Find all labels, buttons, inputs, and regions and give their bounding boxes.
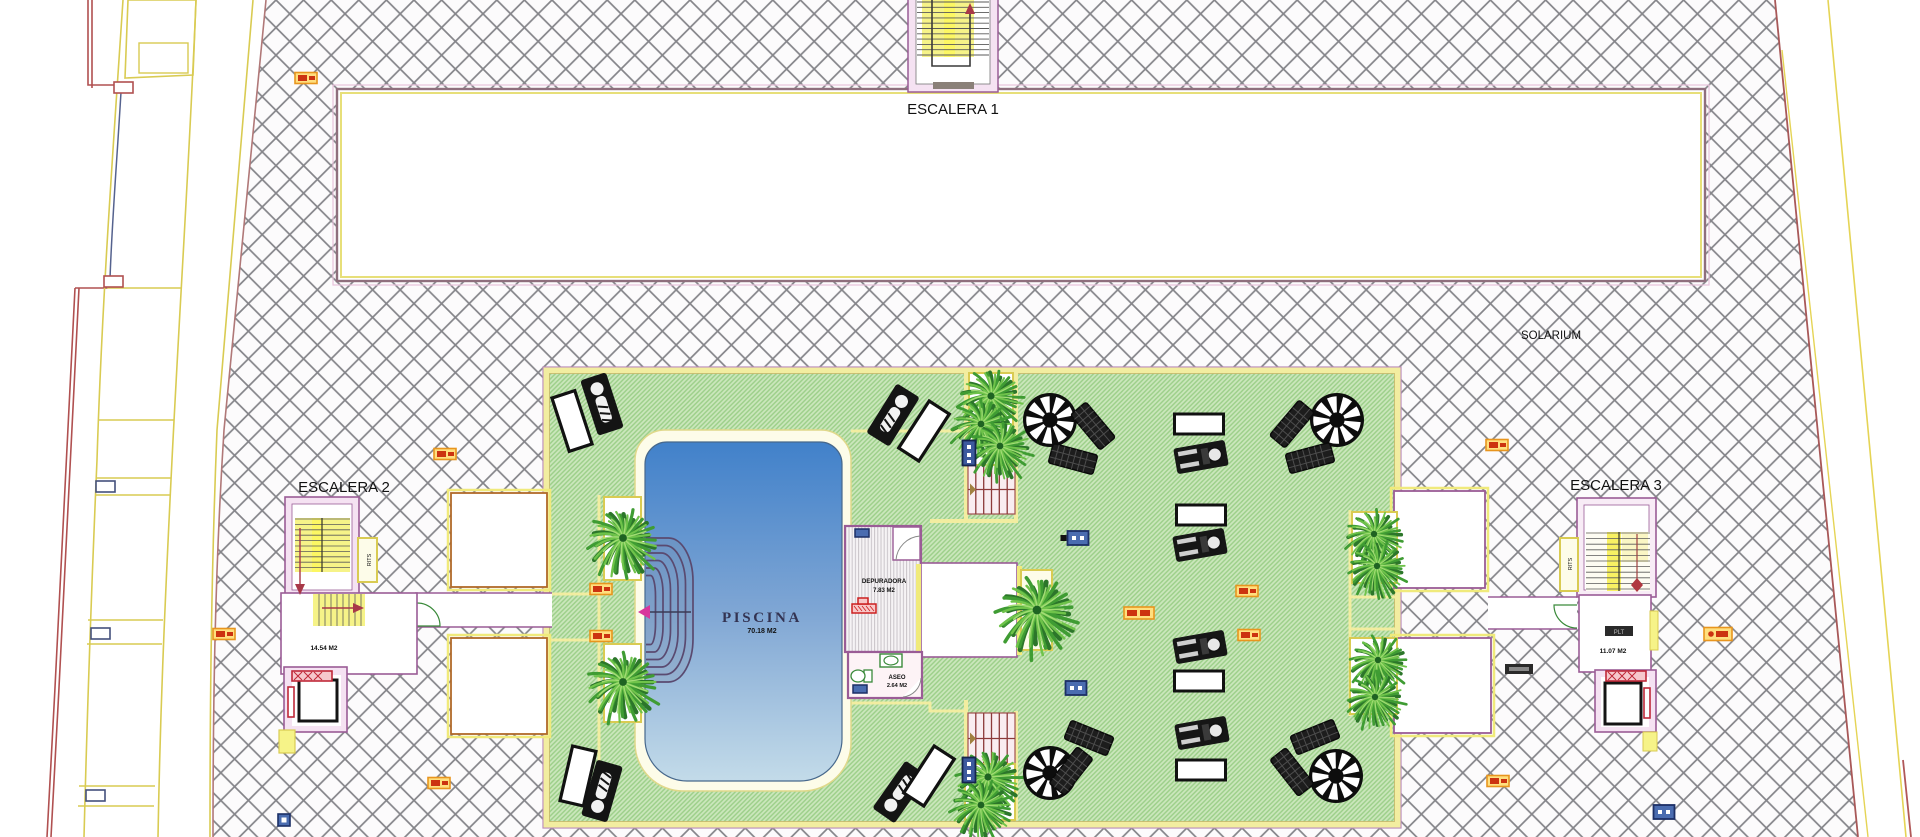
svg-text:SOLARIUM: SOLARIUM <box>1521 330 1581 342</box>
svg-text:PLT: PLT <box>1614 630 1625 636</box>
svg-text:7.83 M2: 7.83 M2 <box>873 588 895 594</box>
svg-text:ESCALERA 2: ESCALERA 2 <box>298 479 390 496</box>
svg-text:2.64 M2: 2.64 M2 <box>887 683 907 689</box>
svg-text:PISCINA: PISCINA <box>722 610 802 626</box>
svg-text:11.07 M2: 11.07 M2 <box>1600 648 1627 655</box>
svg-text:14.54 M2: 14.54 M2 <box>310 645 337 652</box>
svg-text:70.18 M2: 70.18 M2 <box>747 628 776 635</box>
svg-text:ESCALERA 1: ESCALERA 1 <box>907 101 999 118</box>
svg-text:DEPURADORA: DEPURADORA <box>862 578 907 585</box>
svg-text:RITS: RITS <box>367 553 373 566</box>
svg-text:ASEO: ASEO <box>888 675 905 681</box>
svg-text:RITS: RITS <box>1568 557 1574 570</box>
svg-text:ESCALERA 3: ESCALERA 3 <box>1570 477 1662 494</box>
